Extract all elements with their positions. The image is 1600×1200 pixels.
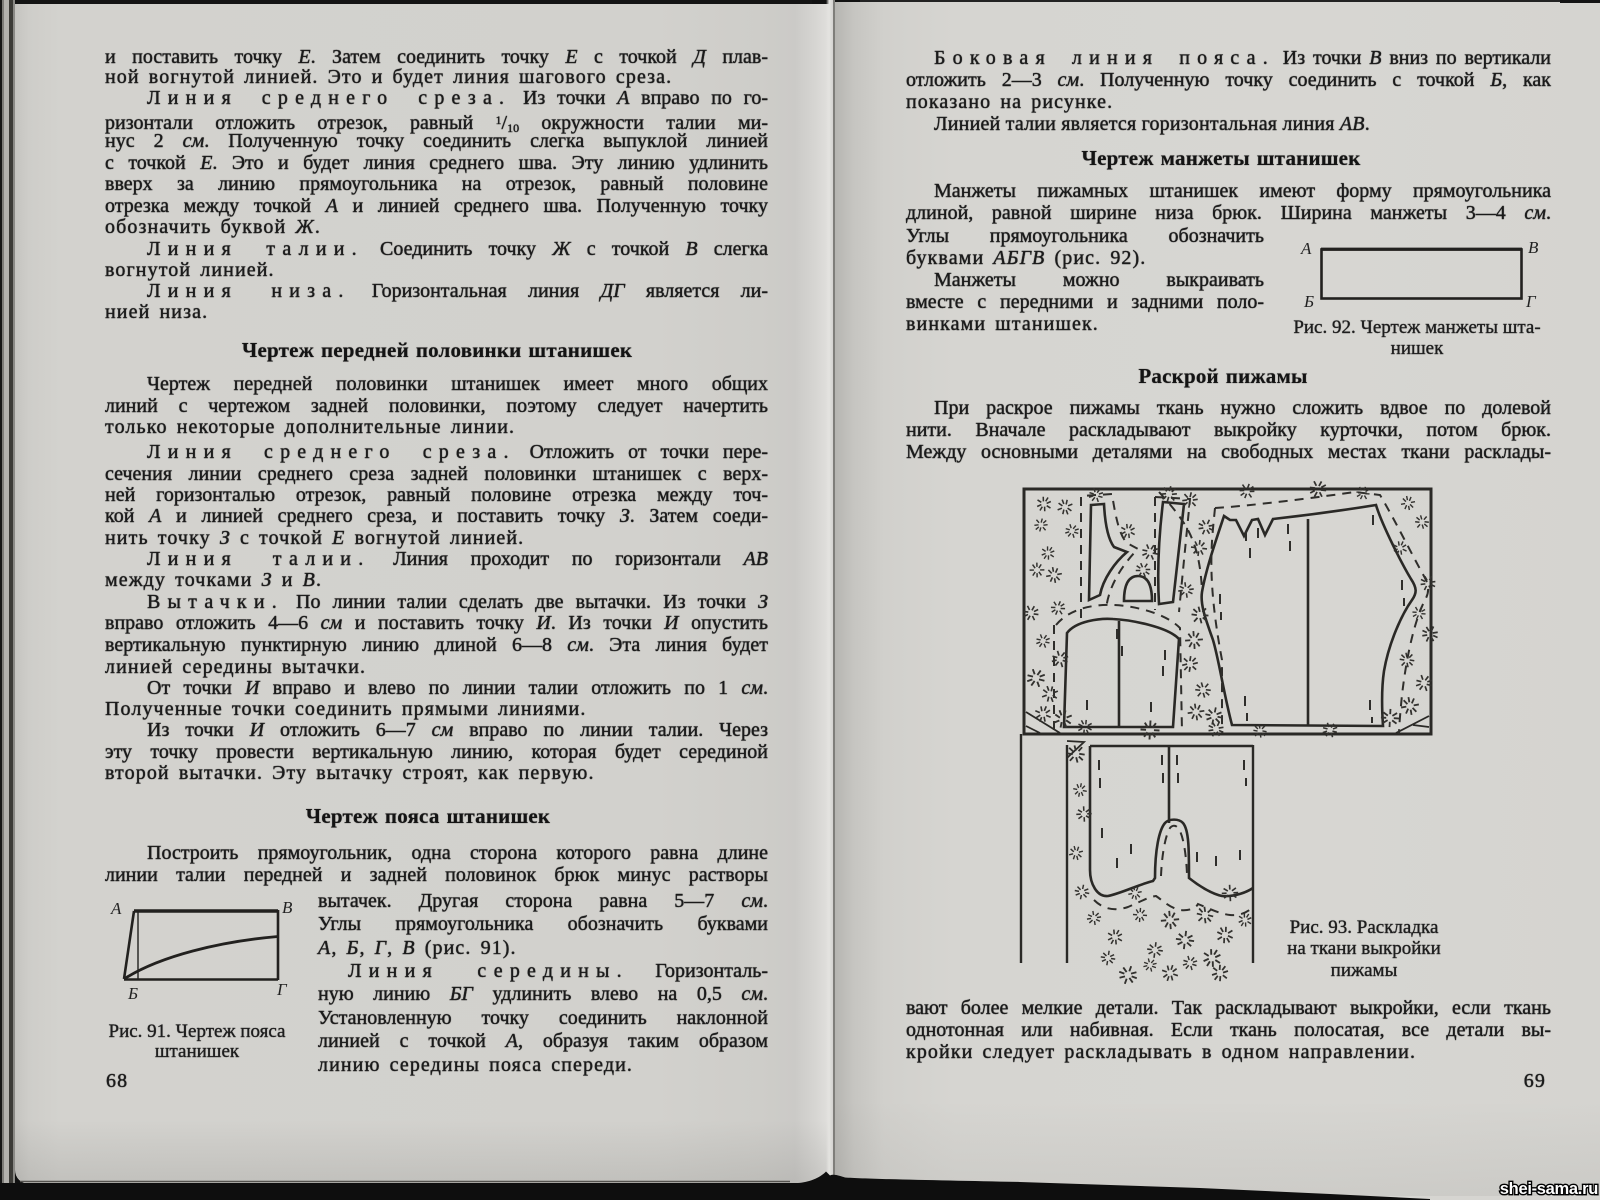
svg-text:В: В bbox=[1528, 238, 1539, 257]
svg-text:Г: Г bbox=[1525, 292, 1537, 311]
svg-text:Б: Б bbox=[127, 984, 138, 1003]
svg-text:shei-sama.ru: shei-sama.ru bbox=[1500, 1180, 1598, 1198]
svg-text:А: А bbox=[110, 899, 122, 918]
svg-text:А: А bbox=[1300, 239, 1312, 258]
svg-text:Г: Г bbox=[276, 980, 288, 999]
svg-text:Б: Б bbox=[1303, 292, 1314, 311]
svg-text:В: В bbox=[282, 898, 293, 917]
